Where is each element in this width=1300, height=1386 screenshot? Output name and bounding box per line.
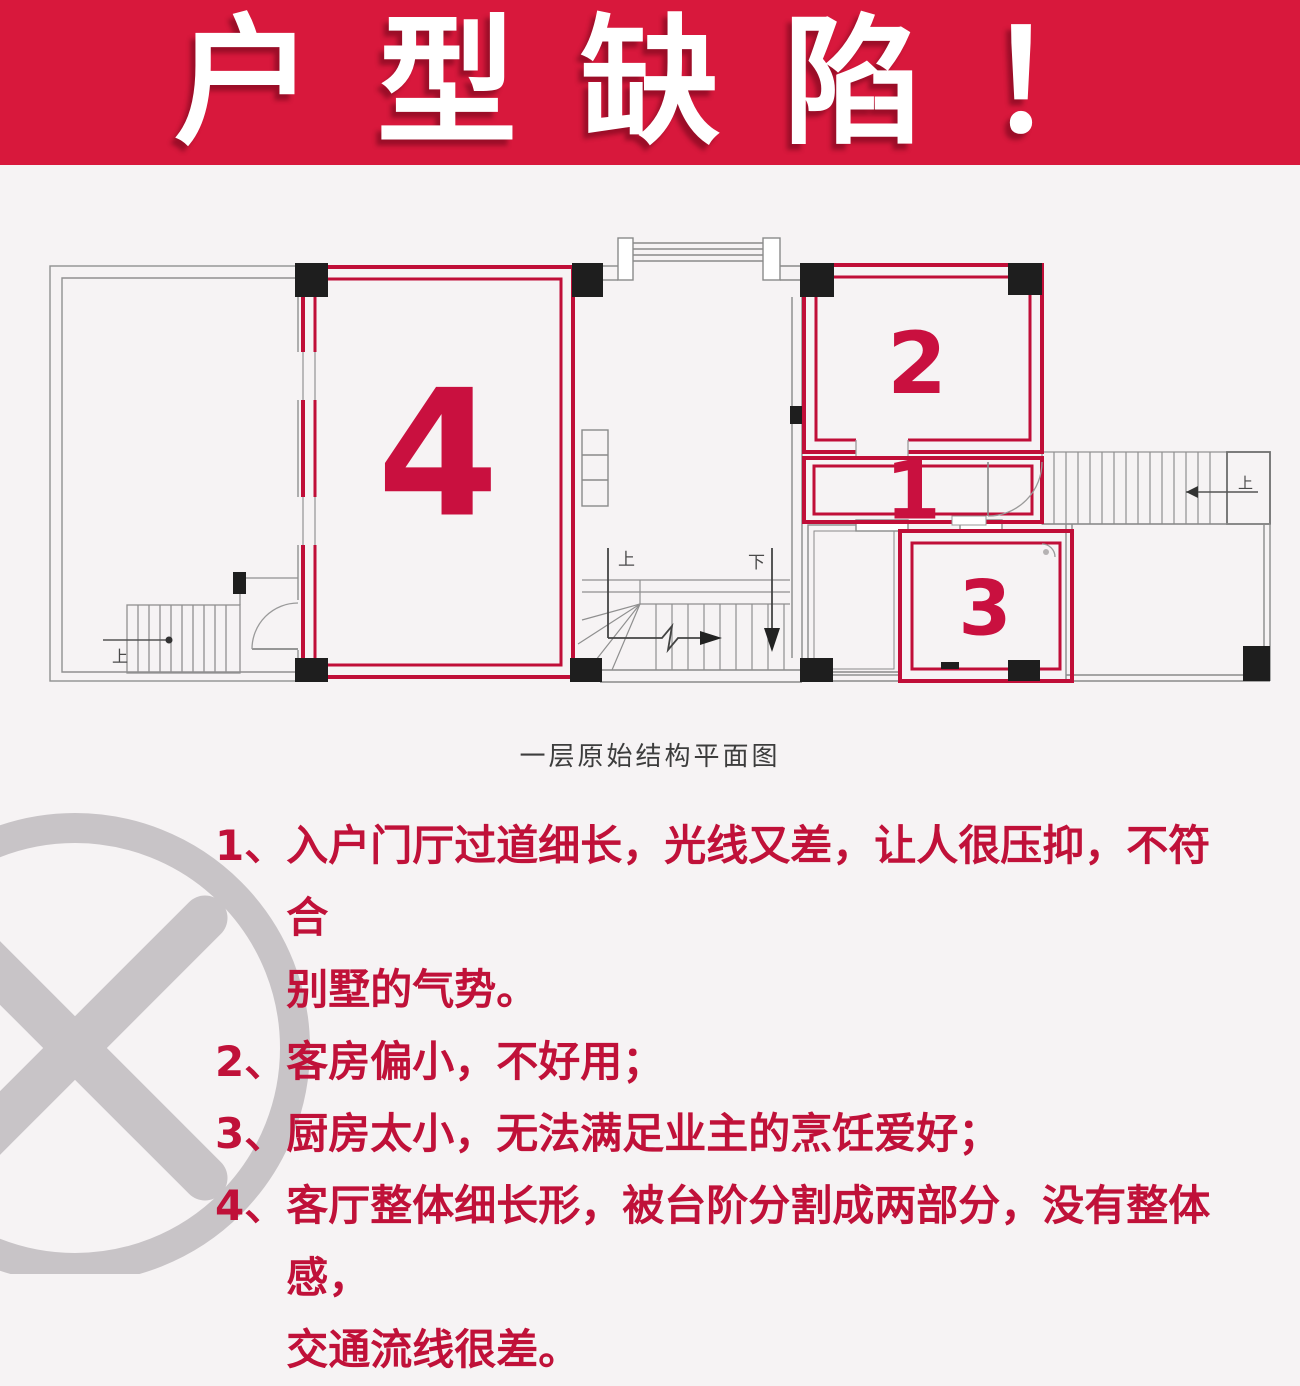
defect-item-1: 1、 入户门厅过道细长，光线又差，让人很压抑，不符合 别墅的气势。 <box>215 810 1245 1026</box>
defect-item-4: 4、 客厅整体细长形，被台阶分割成两部分，没有整体感， 交通流线很差。 <box>215 1170 1245 1386</box>
defect-item-2: 2、 客房偏小，不好用； <box>215 1026 1245 1098</box>
defect-number: 1、 <box>215 810 286 882</box>
defect-list: 1、 入户门厅过道细长，光线又差，让人很压抑，不符合 别墅的气势。 2、 客房偏… <box>215 810 1245 1386</box>
corridor-door <box>952 462 1042 525</box>
stair-up-main-label: 上 <box>618 550 635 570</box>
corridor-1-label: 1 <box>885 445 941 538</box>
defect-number: 4、 <box>215 1170 286 1242</box>
room-2-label: 2 <box>887 314 947 414</box>
defect-text-line: 交通流线很差。 <box>286 1314 1245 1386</box>
main-stair-down-arrow: 下 <box>748 548 780 652</box>
title-banner: 户型缺陷！ <box>0 0 1300 165</box>
defect-text-line: 别墅的气势。 <box>286 954 1245 1026</box>
main-stair-up-arrow: 上 <box>608 548 722 650</box>
right-stair-direction-arrow: 上 <box>1186 474 1258 498</box>
stair-up-right-label: 上 <box>1238 474 1253 492</box>
entry-porch <box>618 238 780 280</box>
terrace <box>50 266 298 681</box>
stair-down-main-label: 下 <box>748 553 765 573</box>
defect-text-line: 入户门厅过道细长，光线又差，让人很压抑，不符合 <box>286 810 1245 954</box>
left-staircase <box>127 578 298 673</box>
plan-caption: 一层原始结构平面图 <box>0 736 1300 773</box>
right-room <box>1042 524 1270 681</box>
defect-item-3: 3、 厨房太小，无法满足业主的烹饪爱好； <box>215 1098 1245 1170</box>
right-staircase <box>1042 452 1270 524</box>
stair-up-left-label: 上 <box>112 647 128 666</box>
room-3-label: 3 <box>959 564 1012 653</box>
defect-text-line: 厨房太小，无法满足业主的烹饪爱好； <box>286 1098 1245 1170</box>
room-3-fixture <box>1042 544 1055 557</box>
page-title: 户型缺陷！ <box>0 0 1300 165</box>
room-4-windows <box>297 352 321 545</box>
defect-number: 3、 <box>215 1098 286 1170</box>
main-staircase <box>578 580 790 670</box>
defect-number: 2、 <box>215 1026 286 1098</box>
room-4-label: 4 <box>377 354 499 557</box>
defect-text-line: 客厅整体细长形，被台阶分割成两部分，没有整体感， <box>286 1170 1245 1314</box>
defect-text-line: 客房偏小，不好用； <box>286 1026 1245 1098</box>
hall-walls <box>582 297 802 682</box>
terrace-door <box>252 600 317 650</box>
